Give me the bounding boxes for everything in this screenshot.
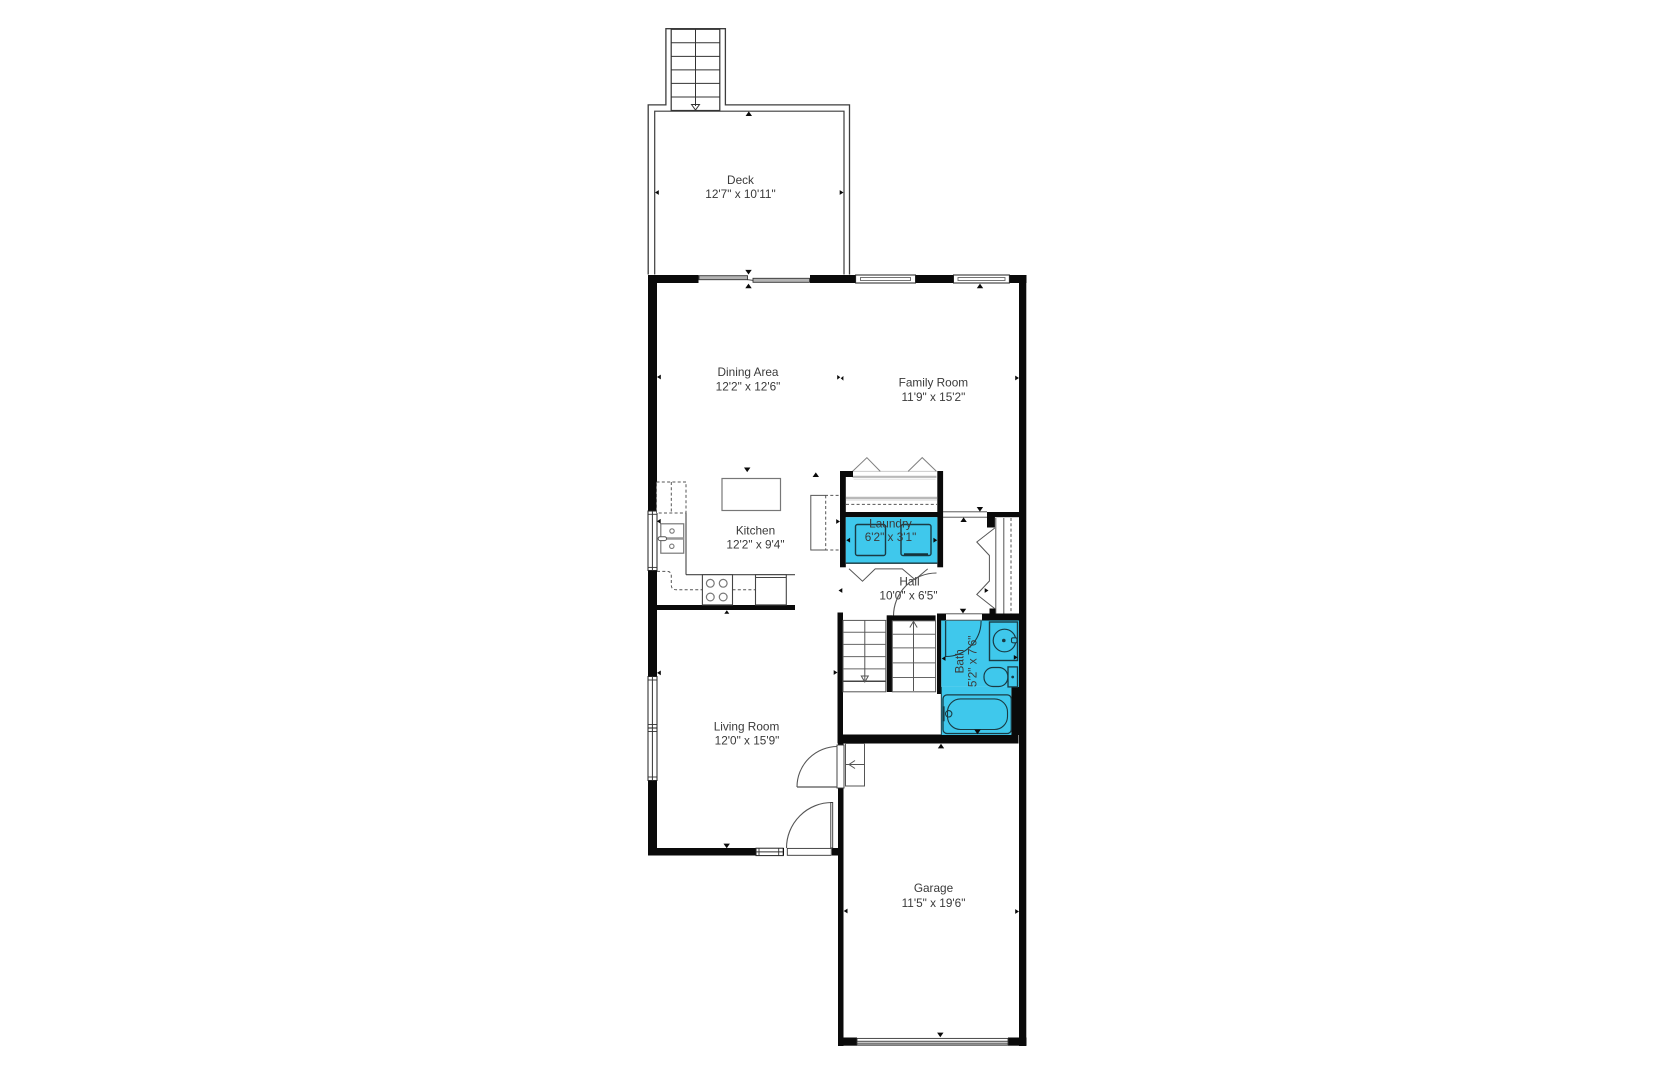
svg-text:12'0" x 15'9": 12'0" x 15'9" — [715, 733, 780, 747]
svg-text:12'7" x 10'11": 12'7" x 10'11" — [705, 187, 775, 201]
svg-text:Living Room: Living Room — [714, 719, 780, 733]
svg-text:12'2" x 12'6": 12'2" x 12'6" — [716, 379, 781, 393]
svg-text:10'0" x 6'5": 10'0" x 6'5" — [879, 589, 937, 603]
svg-text:Dining Area: Dining Area — [718, 365, 779, 379]
svg-text:11'5" x 19'6": 11'5" x 19'6" — [902, 896, 966, 910]
svg-text:Laundry: Laundry — [869, 517, 912, 531]
svg-text:11'9" x 15'2": 11'9" x 15'2" — [901, 390, 965, 404]
svg-text:Kitchen: Kitchen — [736, 523, 775, 537]
svg-text:Garage: Garage — [914, 881, 954, 895]
svg-text:Deck: Deck — [727, 173, 754, 187]
svg-text:12'2" x 9'4": 12'2" x 9'4" — [726, 538, 784, 552]
svg-text:Family Room: Family Room — [899, 376, 969, 390]
svg-text:6'2" x 3'1": 6'2" x 3'1" — [865, 530, 917, 544]
svg-text:5'2" x 7'6": 5'2" x 7'6" — [966, 636, 980, 688]
svg-text:Hall: Hall — [899, 574, 919, 588]
